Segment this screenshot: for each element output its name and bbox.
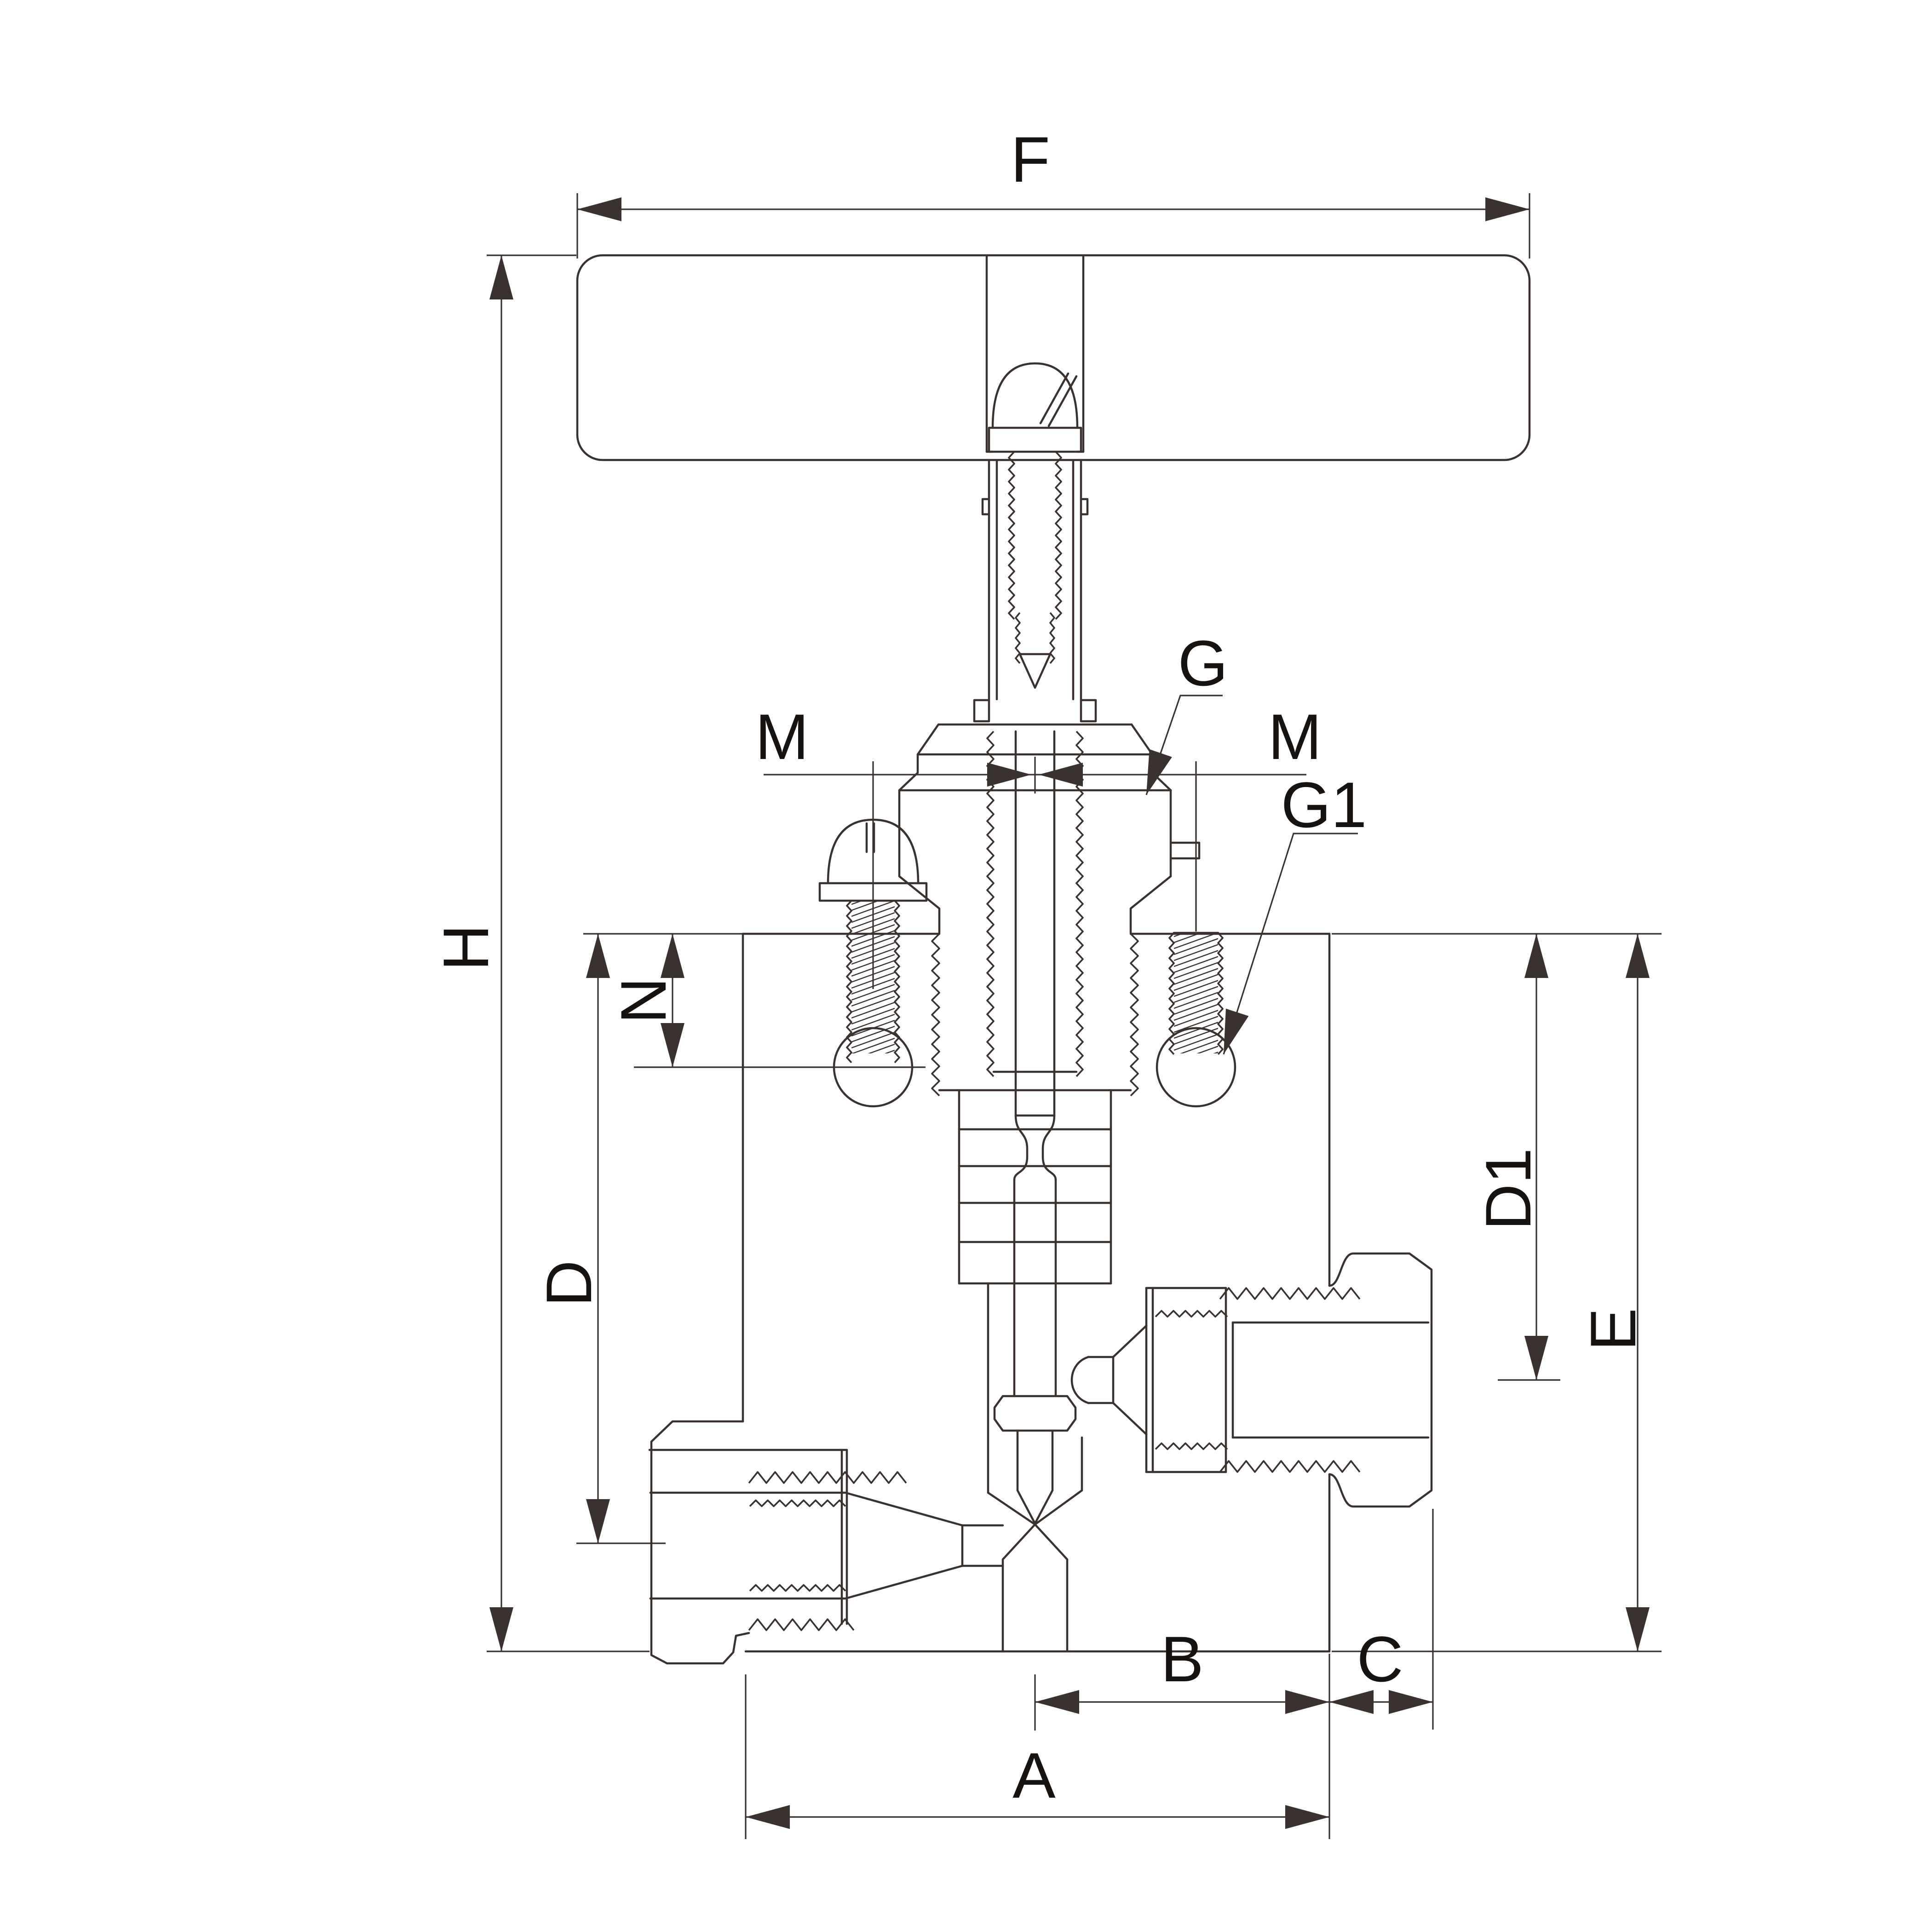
dim-label-f: F bbox=[1011, 123, 1050, 195]
dim-label-d: D bbox=[533, 1260, 605, 1306]
dim-label-h: H bbox=[430, 924, 502, 971]
valve-geometry bbox=[577, 255, 1529, 1663]
dim-label-g1: G1 bbox=[1281, 769, 1367, 841]
dim-label-g: G bbox=[1178, 627, 1228, 699]
dim-label-d1: D1 bbox=[1472, 1148, 1544, 1230]
dim-label-c: C bbox=[1357, 1623, 1403, 1695]
dim-label-a: A bbox=[1012, 1739, 1056, 1811]
dim-label-n: N bbox=[607, 977, 679, 1023]
dim-label-e: E bbox=[1577, 1308, 1649, 1351]
technical-drawing-canvas: F H M M G G1 N D D1 E B C A bbox=[0, 0, 1932, 1932]
dim-label-m-right: M bbox=[1268, 701, 1322, 773]
needle-valve-section-drawing: F H M M G G1 N D D1 E B C A bbox=[0, 0, 1932, 1932]
dim-label-m-left: M bbox=[755, 701, 809, 773]
dimension-labels: F H M M G G1 N D D1 E B C A bbox=[430, 123, 1649, 1811]
dim-label-b: B bbox=[1161, 1623, 1203, 1695]
